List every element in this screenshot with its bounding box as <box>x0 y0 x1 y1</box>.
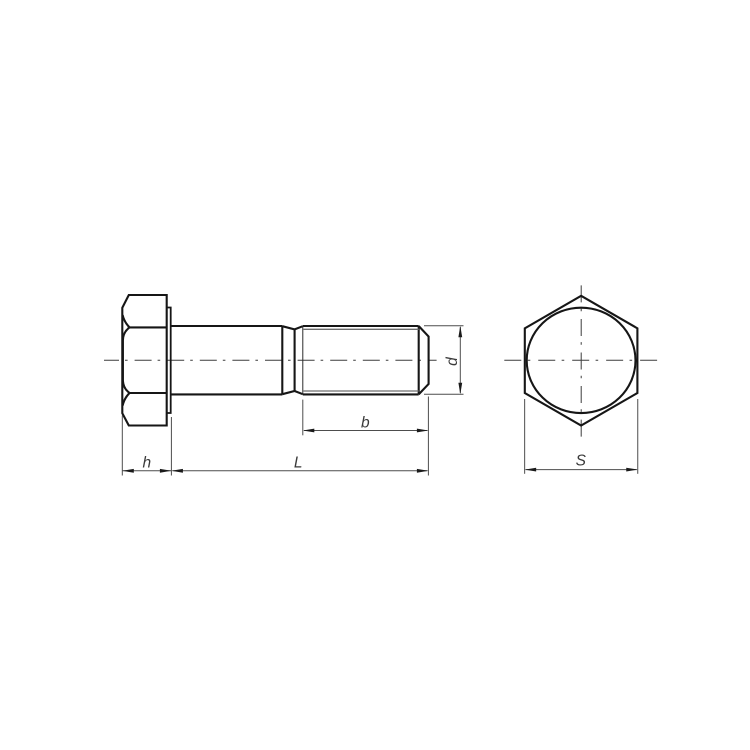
svg-text:b: b <box>361 414 370 431</box>
svg-text:d: d <box>444 356 461 366</box>
svg-text:S: S <box>576 453 587 470</box>
svg-text:L: L <box>294 454 303 471</box>
svg-text:h: h <box>142 455 151 472</box>
